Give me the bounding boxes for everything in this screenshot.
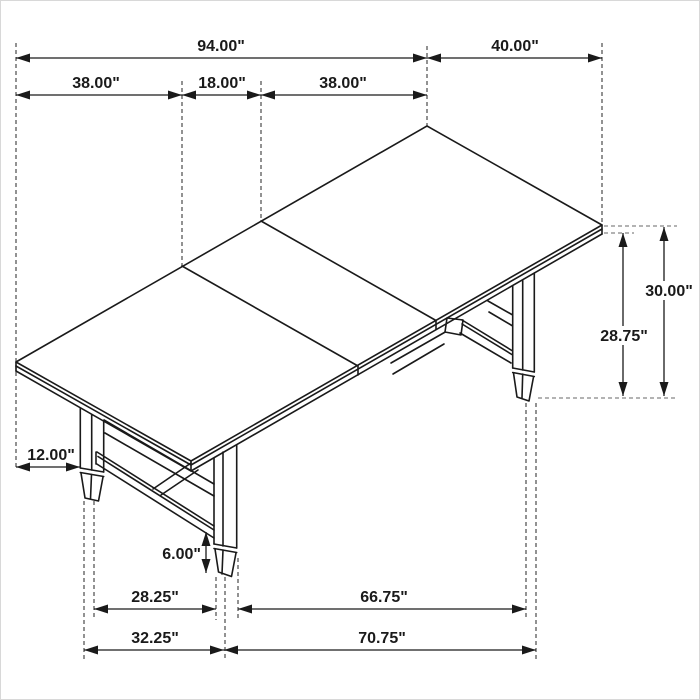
dimension-arrowhead [182,91,196,100]
dimension-arrowhead [427,54,441,63]
dimension-arrowhead [16,54,30,63]
dimension-label: 30.00" [645,283,693,300]
dim-end-section-right: 38.00" [261,75,427,100]
dimension-label: 6.00" [162,546,201,563]
dimension-label: 18.00" [198,75,246,92]
dimension-arrowhead [619,382,628,396]
dimension-arrowhead [413,54,427,63]
dimension-arrowhead [94,605,108,614]
dimension-arrowhead [261,91,275,100]
dimension-arrowhead [202,605,216,614]
dimension-arrowhead [224,646,238,655]
dimension-label: 94.00" [197,38,245,55]
dim-height-under-top: 28.75" [593,233,654,396]
dimension-arrowhead [413,91,427,100]
table-leg-front-right [513,273,535,401]
dim-center-leaf: 18.00" [182,75,261,100]
dimension-arrowhead [168,91,182,100]
dimension-label: 28.75" [600,328,648,345]
dimension-arrowhead [619,233,628,247]
dim-top-width: 40.00" [427,38,602,63]
dimension-label: 28.25" [131,589,179,606]
dimension-arrowhead [522,646,536,655]
dimension-arrowhead [238,605,252,614]
dim-leg-inset-from-end: 12.00" [16,447,80,472]
dim-feet-spacing-outer-length: 70.75" [224,630,536,655]
dim-feet-spacing-outer-width: 32.25" [84,630,224,655]
dimension-arrowhead [247,91,261,100]
dimension-arrowhead [588,54,602,63]
dimension-arrowhead [16,91,30,100]
dimension-arrowhead [202,559,211,573]
dim-feet-spacing-inner-width: 28.25" [94,589,216,614]
dimension-arrowhead [660,382,669,396]
dimension-label: 38.00" [72,75,120,92]
dim-overall-length: 94.00" [16,38,427,63]
dimension-arrowhead [210,646,224,655]
dim-end-section-left: 38.00" [16,75,182,100]
table-dimension-drawing: 94.00"40.00"38.00"18.00"38.00"12.00"28.2… [1,1,700,700]
dimension-label: 70.75" [358,630,406,647]
dim-foot-height: 6.00" [162,532,210,573]
dimension-diagram-canvas: 94.00"40.00"38.00"18.00"38.00"12.00"28.2… [0,0,700,700]
dimension-label: 12.00" [27,447,75,464]
dimension-label: 38.00" [319,75,367,92]
dim-overall-height: 30.00" [638,227,699,396]
table-illustration [16,126,602,577]
dimension-arrowhead [512,605,526,614]
dimension-label: 40.00" [491,38,539,55]
dimension-arrowhead [660,227,669,241]
table-leg-front-left [214,445,237,577]
dim-feet-spacing-inner-length: 66.75" [238,589,526,614]
dimension-label: 32.25" [131,630,179,647]
dimension-arrowhead [84,646,98,655]
dimension-label: 66.75" [360,589,408,606]
